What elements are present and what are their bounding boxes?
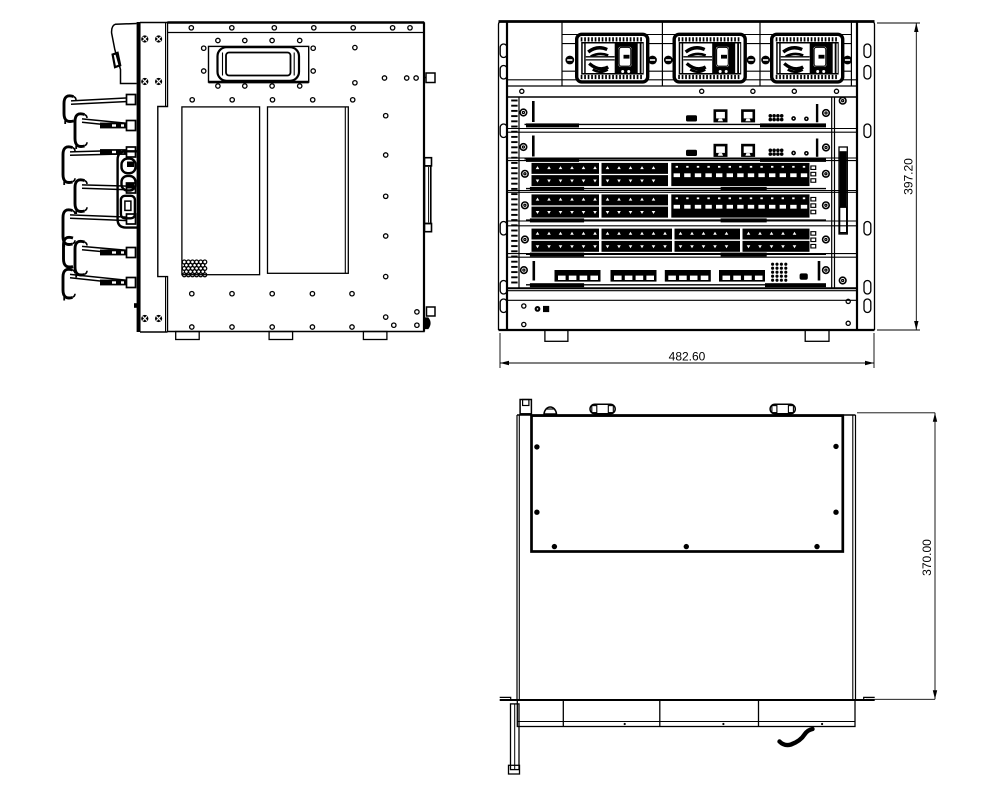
svg-text:397.20: 397.20: [902, 158, 916, 195]
svg-text:482.60: 482.60: [669, 350, 706, 364]
svg-text:370.00: 370.00: [920, 539, 934, 576]
